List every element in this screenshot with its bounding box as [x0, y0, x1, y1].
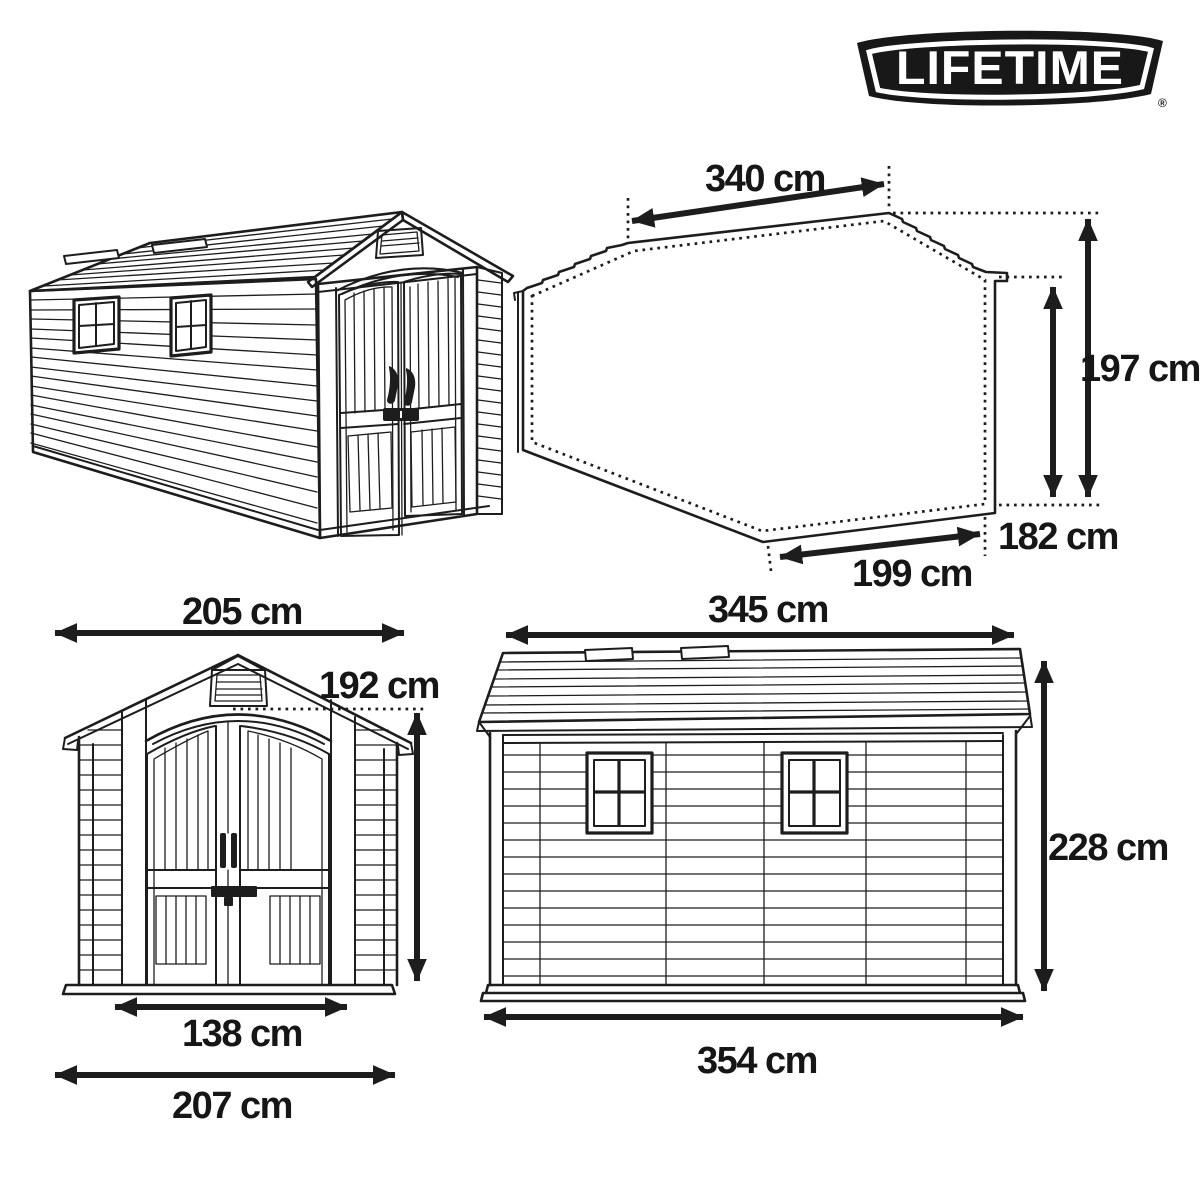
footprint-outline [523, 213, 1007, 542]
lifetime-logo: LIFETIME ® [857, 31, 1167, 110]
dim-label-182: 182 cm [998, 516, 1118, 558]
dim-label-197: 197 cm [1080, 348, 1200, 390]
side-wall [490, 731, 1016, 985]
door-latch [383, 408, 419, 421]
dim-label-354: 354 cm [697, 1040, 817, 1082]
dim-label-340: 340 cm [705, 158, 825, 200]
door-handle-icon [220, 833, 226, 868]
perspective-front [318, 228, 489, 538]
door-latch [211, 886, 257, 906]
dim-label-345: 345 cm [708, 589, 828, 631]
front-gable-vent [376, 228, 423, 258]
dim-label-138: 138 cm [182, 1013, 302, 1055]
skylight [64, 250, 119, 264]
front-elevation: 205 cm 192 cm 138 cm 207 cm [55, 591, 439, 1127]
diagram-svg: LIFETIME ® [0, 0, 1200, 1200]
front-door-left [147, 726, 215, 985]
side-roof [477, 646, 1032, 737]
door-handle-icon [404, 368, 415, 406]
door-handle-icon [231, 833, 237, 868]
skylight [585, 648, 633, 661]
side-base [481, 985, 1025, 1001]
perspective-view [30, 212, 513, 538]
footprint-diagram: 340 cm 197 cm 182 cm 199 cm [514, 158, 1200, 595]
perspective-right-sliver [477, 267, 502, 514]
side-elev-window-2 [782, 753, 847, 833]
side-elev-window-1 [587, 753, 652, 833]
dim-label-205: 205 cm [182, 591, 302, 633]
dimension-diagram-page: LIFETIME ® [0, 0, 1200, 1200]
door-handle-icon [387, 366, 398, 404]
registered-mark-icon: ® [1158, 96, 1167, 110]
front-door-arch [146, 715, 331, 742]
side-elevation: 345 cm 228 cm 354 cm [477, 589, 1168, 1082]
dim-label-207: 207 cm [172, 1085, 292, 1127]
dim-label-192: 192 cm [319, 665, 439, 707]
perspective-roof [30, 212, 513, 291]
side-window-1 [74, 297, 119, 353]
dim-label-228: 228 cm [1048, 827, 1168, 869]
front-door-right [241, 726, 329, 985]
skylight [681, 646, 729, 659]
dim-label-199: 199 cm [852, 553, 972, 595]
side-window-2 [171, 295, 211, 356]
front-walls [79, 700, 397, 985]
front-base [63, 985, 395, 994]
logo-wordmark: LIFETIME [896, 41, 1124, 94]
front-door-mullion [211, 722, 257, 985]
footprint-inner-outline [532, 221, 985, 531]
perspective-side-wall [30, 279, 320, 538]
